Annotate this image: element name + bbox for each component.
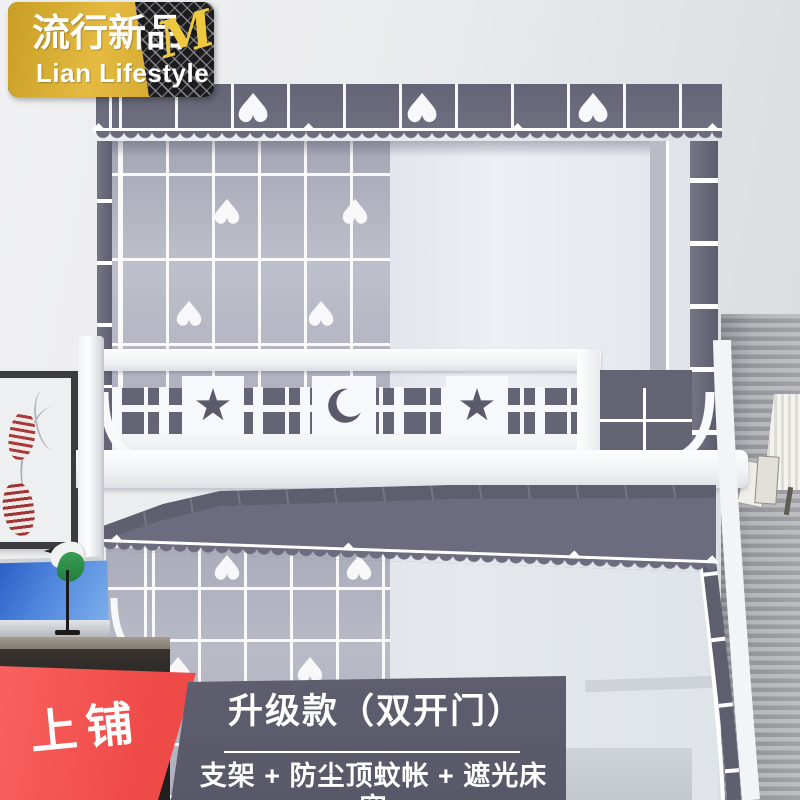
figurine-stand-base [55, 630, 80, 635]
sheer-door-seam [650, 141, 666, 388]
heart-icon: ♥ [402, 86, 442, 126]
star-icon: ★ [457, 384, 496, 428]
laptop-display [0, 560, 109, 629]
curtain-shadow [390, 141, 690, 157]
crescent-moon-icon [324, 386, 364, 426]
bed-frame-beam [76, 450, 748, 488]
guardrail-moon-panel [312, 376, 376, 435]
guardrail-end-post [577, 349, 600, 463]
corner-ribbon-text: 上铺 [28, 697, 144, 759]
promo-banner: 升级款（双开门） 支架 + 防尘顶蚊帐 + 遮光床帘 [166, 674, 566, 800]
curtain-shadow [112, 141, 390, 157]
badge-brand-name: Lian Lifestyle [36, 58, 209, 88]
laptop-screen [0, 557, 105, 626]
heart-icon: ♥ [233, 86, 273, 126]
sheer-door-edge [666, 141, 690, 388]
heart-icon: ♥ [338, 193, 372, 227]
guardrail-star-panel: ★ [182, 376, 244, 435]
brand-badge: 流行新品 Me Lian Lifestyle [8, 2, 214, 97]
guardrail-top-bar [85, 349, 601, 371]
product-photo[interactable]: ♥ ♥ ♥ ◆ ◆ ◆ ◆ ♥ ♥ ♥ ♥ ★ ★ [0, 0, 800, 800]
wall-picture [0, 371, 78, 549]
heart-icon: ♥ [172, 295, 206, 329]
heart-icon: ♥ [573, 86, 613, 126]
star-icon: ★ [193, 384, 232, 428]
guardrail-star-panel: ★ [446, 376, 508, 435]
figurine-stand [66, 570, 69, 632]
valance-scallop-edge [96, 131, 722, 141]
heart-icon: ♥ [304, 295, 338, 329]
heart-icon: ♥ [210, 193, 244, 227]
promo-subtitle: 支架 + 防尘顶蚊帐 + 遮光床帘 [186, 760, 561, 800]
promo-divider [224, 751, 520, 753]
promo-title: 升级款（双开门） [196, 690, 556, 734]
